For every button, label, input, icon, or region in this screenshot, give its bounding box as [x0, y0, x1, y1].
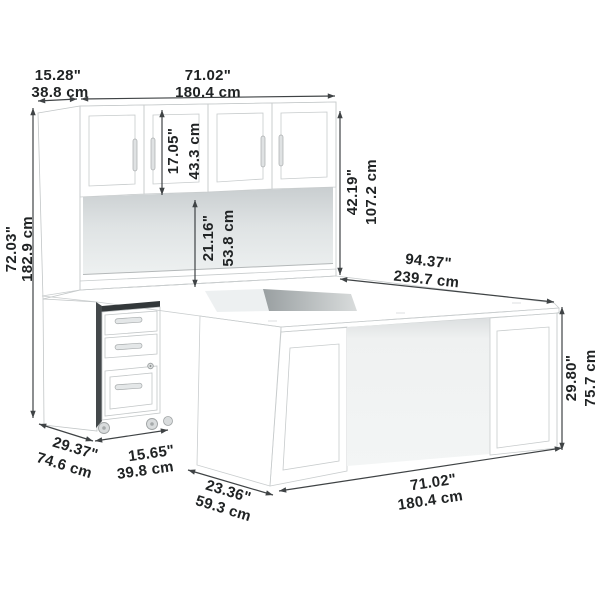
drawer-handle-icon — [115, 343, 142, 350]
label-hutch-height-cm: 107.2 cm — [363, 159, 380, 225]
label-open-height-cm: 53.8 cm — [220, 209, 237, 266]
door-height-line — [159, 110, 164, 195]
label-overall-height-in: 72.03" — [3, 226, 20, 272]
cabinet-gap-top — [102, 301, 160, 312]
caster-wheel — [164, 417, 173, 426]
label-hutch-depth-cm: 38.8 cm — [31, 84, 88, 101]
label-open-height-in: 21.16" — [200, 215, 217, 261]
drawer-handle-icon — [115, 383, 142, 390]
lock-keyhole — [150, 365, 152, 367]
desk-right-pedestal-inset-panel — [497, 327, 549, 448]
desk-left-pedestal — [270, 327, 347, 486]
desk-right-side-edge — [557, 311, 562, 448]
mobile-file-cabinet — [96, 301, 173, 434]
label-door-height-in: 17.05" — [165, 128, 182, 174]
return-left-side-panel — [43, 299, 97, 431]
dimension-diagram: 15.28" 38.8 cm 71.02" 180.4 cm 17.05" 43… — [0, 0, 600, 600]
cabinet-file-drawer-inset-panel — [110, 373, 152, 409]
desk-left-side-panel — [197, 316, 281, 486]
hutch-door-1-inset-panel — [89, 115, 135, 186]
hutch-height-line — [337, 111, 342, 275]
desk-right-pedestal — [490, 313, 557, 455]
hutch-left-side-panel — [38, 106, 80, 299]
hutch-door-4-inset-panel — [281, 112, 327, 179]
desk-opening-cutout — [263, 289, 357, 311]
drawer-handle-icon — [115, 317, 142, 324]
door-handle-icon — [261, 136, 265, 167]
label-hutch-depth-in: 15.28" — [35, 67, 81, 84]
door-handle-icon — [279, 135, 283, 166]
label-hutch-width-cm: 180.4 cm — [175, 84, 241, 101]
door-handle-icon — [133, 139, 137, 171]
caster-hub — [102, 426, 106, 430]
label-overall-height-cm: 182.9 cm — [19, 216, 36, 282]
caster-hub — [150, 422, 154, 426]
desktop-shadow — [205, 289, 269, 312]
label-desk-height-cm: 75.7 cm — [582, 349, 599, 406]
label-hutch-height-in: 42.19" — [344, 169, 361, 215]
label-desk-width-cm: 180.4 cm — [397, 487, 465, 514]
cabinet-gap-left — [96, 302, 102, 428]
door-handle-icon — [151, 138, 155, 170]
desk-left-pedestal-inset-panel — [283, 344, 339, 470]
label-hutch-width-in: 71.02" — [185, 67, 231, 84]
label-door-height-cm: 43.3 cm — [186, 122, 203, 179]
desk-center-recessed-panel — [347, 318, 490, 466]
label-cabinet-width-cm: 39.8 cm — [116, 458, 175, 483]
label-desk-height-in: 29.80" — [563, 355, 580, 401]
hutch-door-3-inset-panel — [217, 113, 263, 182]
product-dimension-illustration: 15.28" 38.8 cm 71.02" 180.4 cm 17.05" 43… — [0, 0, 600, 600]
